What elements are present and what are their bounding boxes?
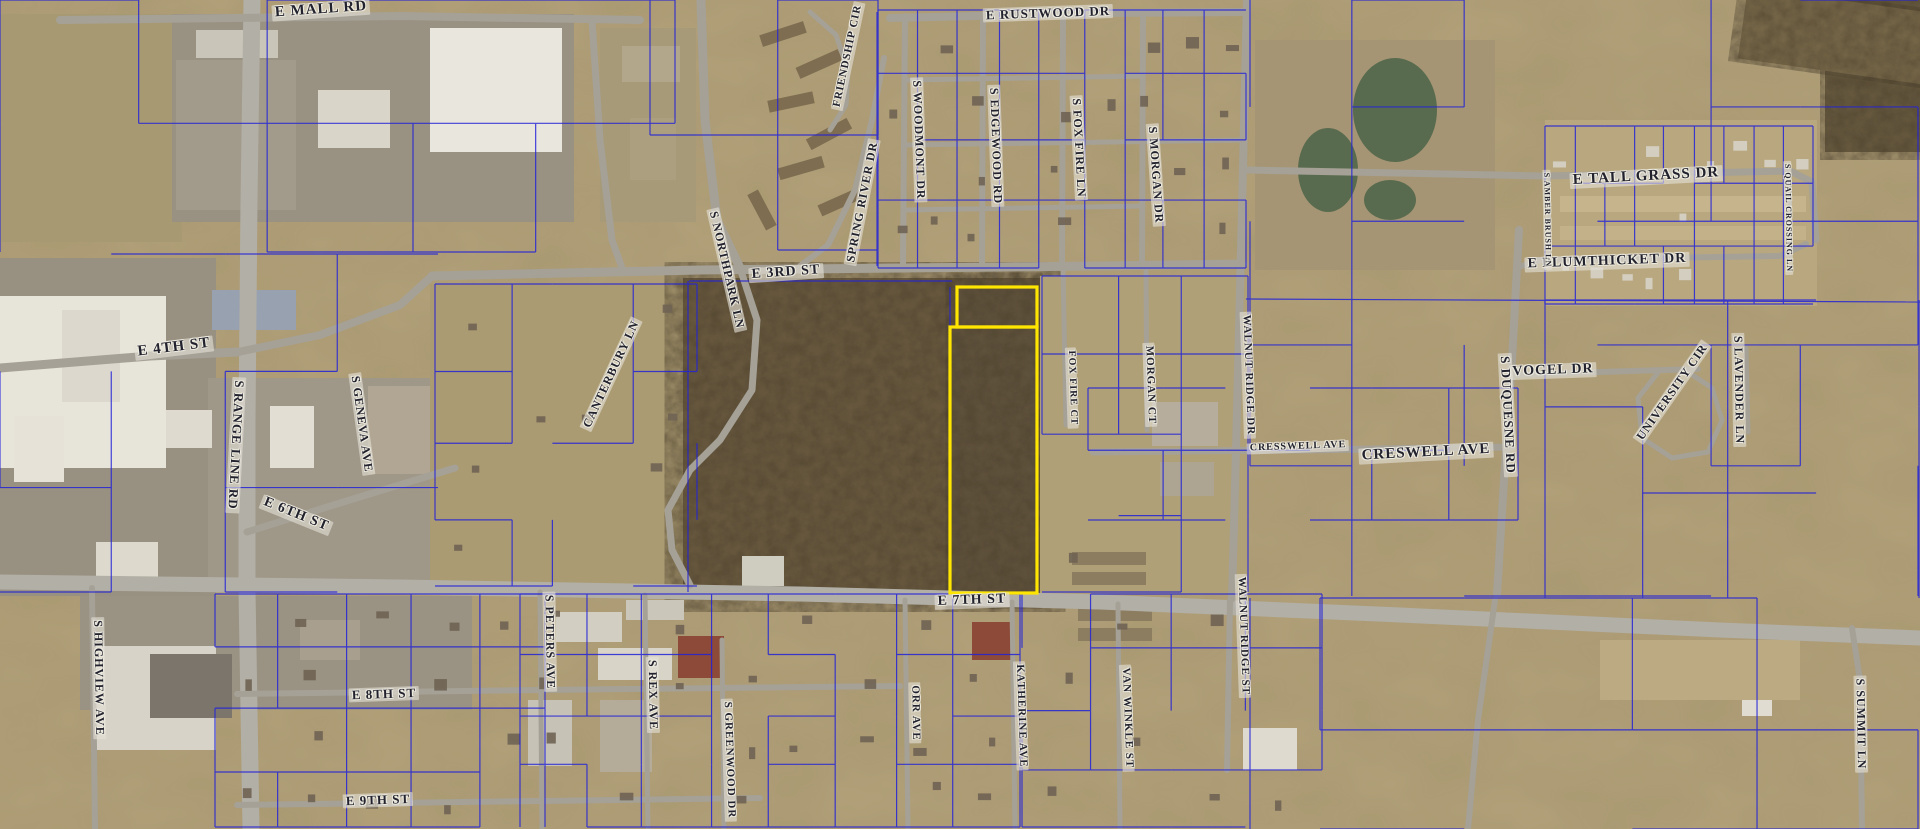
road-e-mall-rd xyxy=(60,16,640,20)
road-s-peters-ave xyxy=(540,592,542,829)
road-walnut-ridge-st xyxy=(1227,600,1230,770)
map-viewport[interactable]: E MALL RDE RUSTWOOD DRE TALL GRASS DRE P… xyxy=(0,0,1920,829)
road-s-lavender-ln xyxy=(1746,348,1748,432)
road-morgan-ct xyxy=(1146,268,1147,430)
aerial-map-canvas xyxy=(0,0,1920,829)
road-fox-fire-ct xyxy=(1063,268,1066,425)
road-van-winkle-st xyxy=(1118,604,1120,829)
road-orr-ave xyxy=(905,600,908,829)
road-s-rex-ave xyxy=(645,595,648,829)
road-s-range-line-rd xyxy=(247,0,252,829)
road-s-highview-ave xyxy=(92,588,95,829)
road-s-edgewood-rd xyxy=(982,16,983,266)
